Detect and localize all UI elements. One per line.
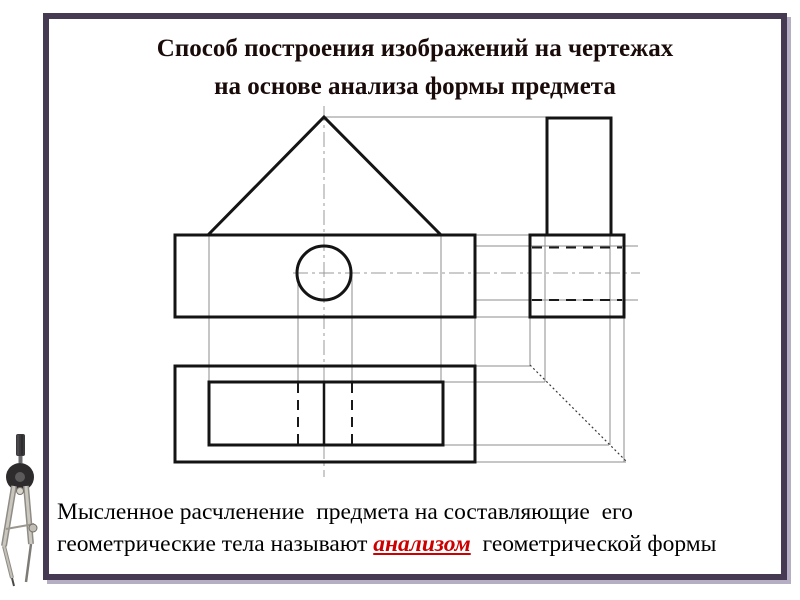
slide-title: Способ построения изображений на чертежа… bbox=[49, 30, 781, 106]
title-line-2: на основе анализа формы предмета bbox=[49, 68, 781, 106]
compass-legs bbox=[4, 486, 37, 586]
compass-image bbox=[0, 428, 50, 590]
title-line-1: Способ построения изображений на чертежа… bbox=[49, 30, 781, 68]
compass-bow-ring bbox=[6, 463, 34, 491]
compass-knob bbox=[16, 434, 25, 463]
body-text-after: геометрической формы bbox=[471, 531, 717, 557]
body-text: Мысленное расчленение предмета на состав… bbox=[57, 496, 747, 560]
highlighted-term: анализом bbox=[373, 531, 471, 557]
